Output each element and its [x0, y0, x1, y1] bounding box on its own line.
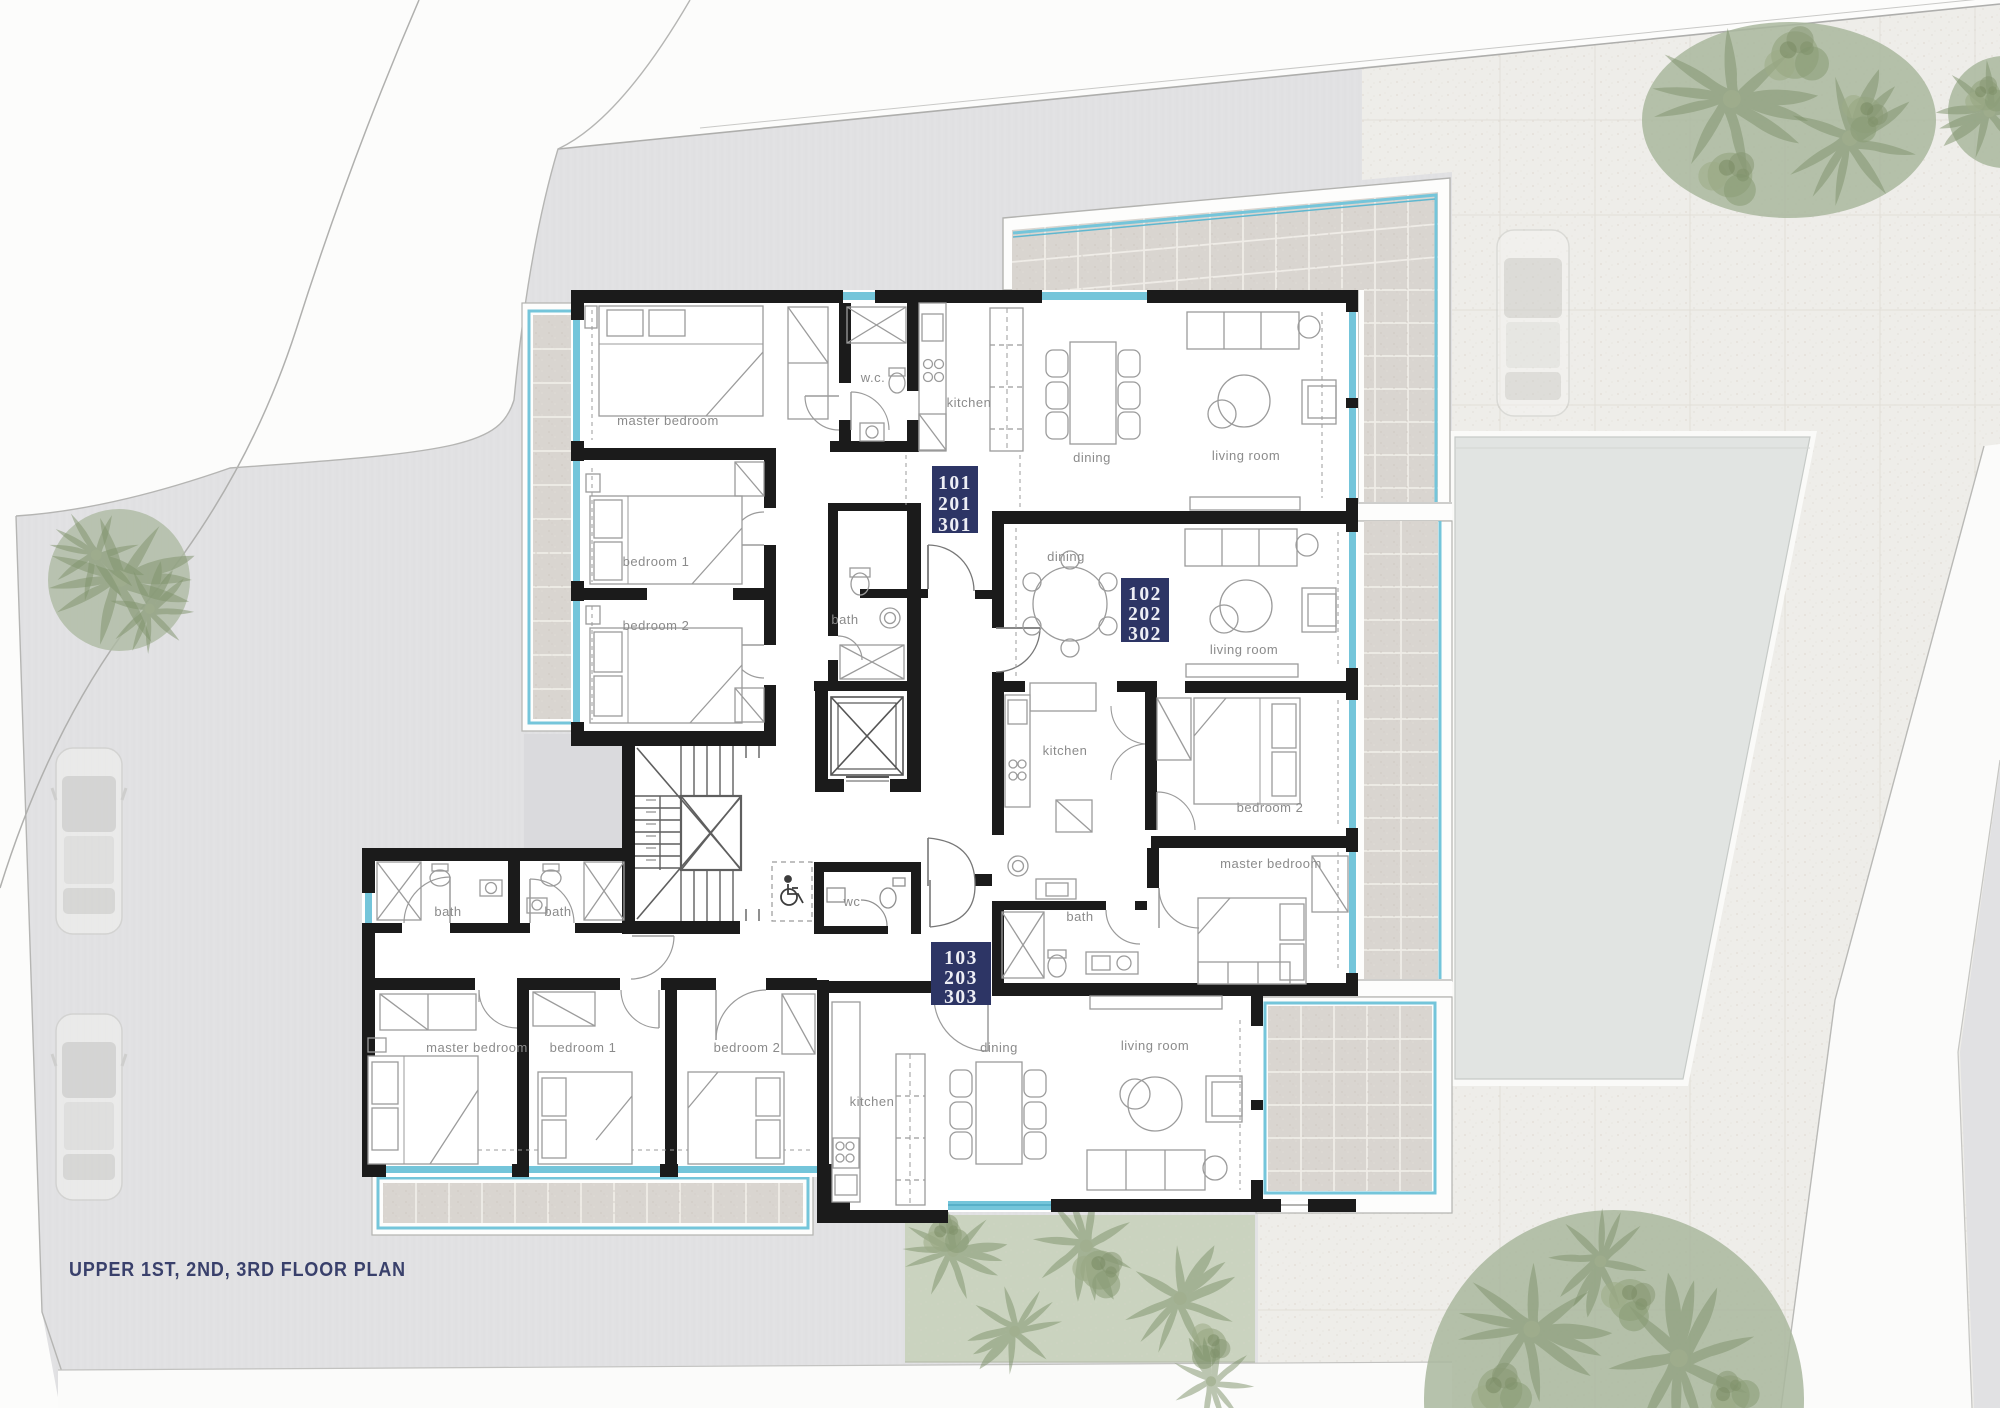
svg-text:master bedroom: master bedroom — [617, 413, 719, 428]
svg-text:102: 102 — [1128, 584, 1162, 605]
svg-text:kitchen: kitchen — [850, 1094, 895, 1109]
svg-text:kitchen: kitchen — [947, 395, 992, 410]
svg-text:living room: living room — [1121, 1038, 1189, 1053]
svg-text:bath: bath — [1066, 909, 1093, 924]
svg-text:wc: wc — [843, 894, 861, 909]
svg-text:bath: bath — [434, 904, 461, 919]
svg-text:bedroom 2: bedroom 2 — [1237, 800, 1304, 815]
svg-text:w.c.: w.c. — [860, 370, 885, 385]
svg-text:dining: dining — [980, 1040, 1018, 1055]
svg-text:dining: dining — [1073, 450, 1111, 465]
svg-text:bedroom 2: bedroom 2 — [714, 1040, 781, 1055]
svg-text:UPPER 1ST, 2ND, 3RD FLOOR PLAN: UPPER 1ST, 2ND, 3RD FLOOR PLAN — [69, 1259, 406, 1281]
svg-text:202: 202 — [1128, 604, 1162, 625]
svg-text:bath: bath — [544, 904, 571, 919]
svg-text:203: 203 — [944, 968, 978, 989]
svg-text:302: 302 — [1128, 624, 1162, 645]
svg-text:101: 101 — [938, 473, 972, 494]
svg-text:living room: living room — [1210, 642, 1278, 657]
svg-text:dining: dining — [1047, 549, 1085, 564]
svg-text:living room: living room — [1212, 448, 1280, 463]
svg-text:301: 301 — [938, 515, 972, 536]
svg-text:303: 303 — [944, 987, 978, 1008]
svg-text:bath: bath — [831, 612, 858, 627]
svg-text:bedroom 1: bedroom 1 — [623, 554, 690, 569]
svg-text:master bedroom: master bedroom — [426, 1040, 528, 1055]
svg-text:bedroom 1: bedroom 1 — [550, 1040, 617, 1055]
svg-text:103: 103 — [944, 948, 978, 969]
svg-text:bedroom 2: bedroom 2 — [623, 618, 690, 633]
svg-text:master bedroom: master bedroom — [1220, 856, 1322, 871]
svg-text:201: 201 — [938, 494, 972, 515]
svg-text:kitchen: kitchen — [1043, 743, 1088, 758]
